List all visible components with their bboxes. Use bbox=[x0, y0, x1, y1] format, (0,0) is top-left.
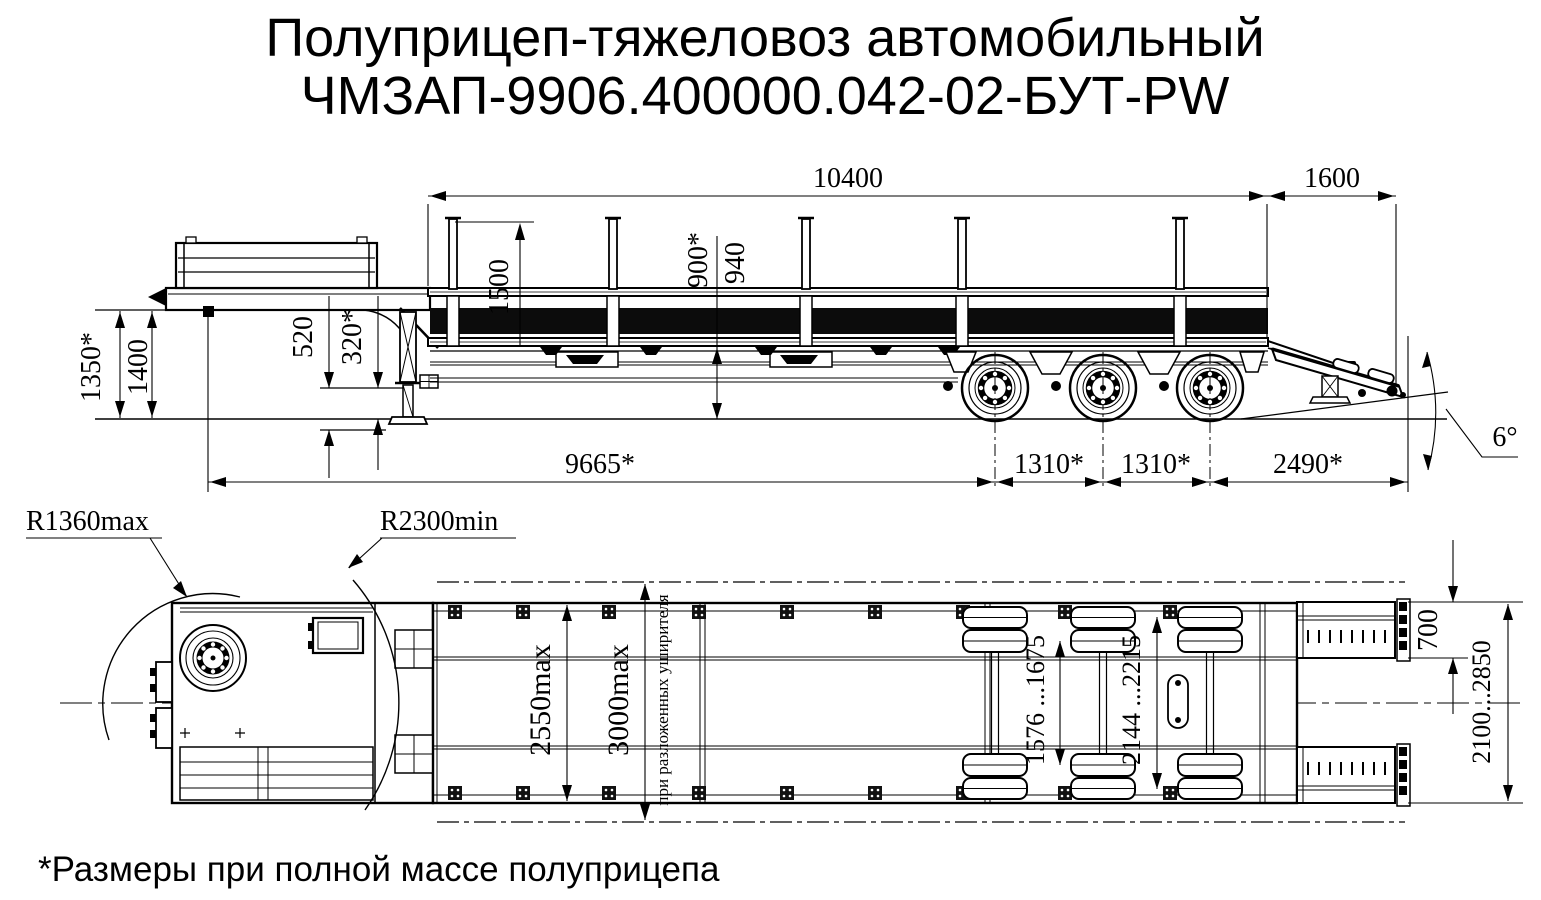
widener-note: при разложенных уширителя bbox=[653, 594, 672, 805]
dim-loading-height-laden: 900* bbox=[683, 232, 714, 288]
dim-overall-length: 10400 bbox=[813, 163, 883, 194]
side-board bbox=[430, 308, 1268, 334]
dim-ground-clearance: 320* bbox=[337, 309, 368, 365]
dim-axle-spacing-1: 1310* bbox=[1014, 449, 1084, 480]
dim-ramp-track: 2100...2850 bbox=[1467, 640, 1496, 764]
radius-leaders bbox=[26, 538, 516, 597]
technical-drawing: Полуприцеп-тяжеловоз автомобильный ЧМЗАП… bbox=[0, 0, 1541, 900]
dim-width-max: 2550max bbox=[524, 644, 557, 756]
dim-axle-spacing-2: 1310* bbox=[1121, 449, 1191, 480]
ramp-incline-line bbox=[1241, 392, 1448, 419]
rear-ramp-side bbox=[1268, 341, 1406, 403]
dim-loading-height: 940 bbox=[720, 242, 751, 284]
page-title-line1: Полуприцеп-тяжеловоз автомобильный bbox=[265, 8, 1264, 68]
dim-front-height-laden: 1350* bbox=[76, 332, 107, 402]
folded-ramps-side bbox=[176, 237, 377, 288]
dim-rear-length: 2490* bbox=[1273, 449, 1343, 480]
page-title-line2: ЧМЗАП-9906.400000.042-02-БУТ-PW bbox=[301, 66, 1230, 126]
drawing-sheet: Полуприцеп-тяжеловоз автомобильный ЧМЗАП… bbox=[0, 0, 1541, 900]
nose-flag bbox=[148, 288, 166, 306]
dim-base: 9665* bbox=[565, 449, 635, 480]
footnote: *Размеры при полной массе полуприцепа bbox=[38, 850, 720, 889]
top-view: R1360max R2300min bbox=[26, 506, 1523, 822]
dim-width-widened: 3000max bbox=[602, 644, 635, 756]
dim-swing-radius-min: R2300min bbox=[380, 506, 498, 537]
platform-side bbox=[428, 288, 1268, 382]
dim-neck-clearance: 520 bbox=[288, 316, 319, 358]
brake-chamber bbox=[1168, 675, 1188, 728]
dim-stake-height: 1500 bbox=[484, 259, 515, 315]
dim-rear-overhang: 1600 bbox=[1304, 163, 1360, 194]
dim-ramp-angle: 6° bbox=[1492, 422, 1517, 453]
spare-wheel bbox=[180, 625, 246, 691]
dim-ramp-width: 700 bbox=[1413, 609, 1444, 651]
under-deck-equipment bbox=[540, 347, 960, 367]
toolbox bbox=[308, 618, 363, 653]
dim-front-height: 1400 bbox=[123, 339, 154, 395]
dim-track-outer: 2144 ...2215 bbox=[1117, 635, 1146, 765]
dim-swing-radius-max: R1360max bbox=[26, 506, 149, 537]
dim-track-inner: 1576 ...1675 bbox=[1021, 635, 1050, 765]
